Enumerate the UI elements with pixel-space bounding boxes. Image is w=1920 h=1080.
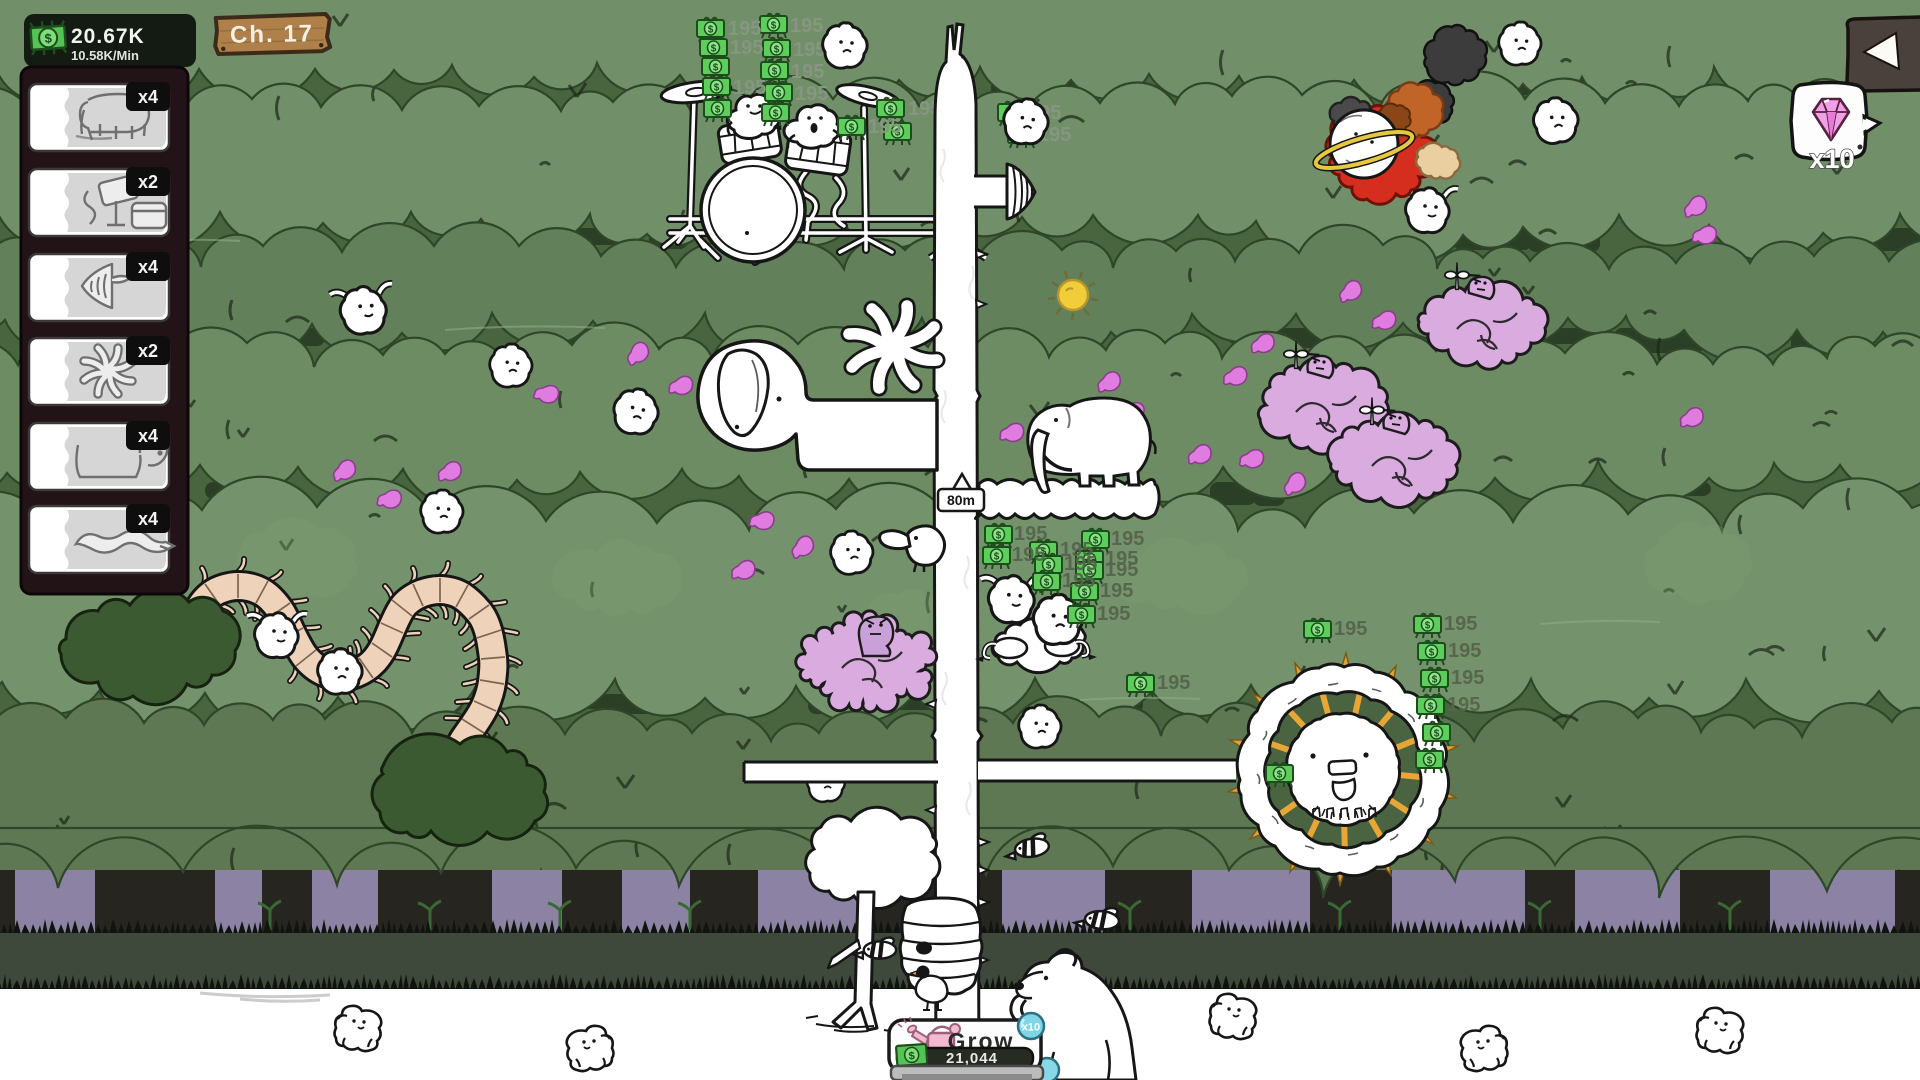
svg-text:195: 195 [1105,559,1138,581]
svg-text:195: 195 [1100,580,1133,602]
svg-text:x4: x4 [138,257,158,277]
svg-text:195: 195 [1448,640,1481,662]
svg-text:195: 195 [1062,570,1095,592]
svg-text:195: 195 [1334,618,1367,640]
svg-text:195: 195 [791,61,824,83]
svg-text:195: 195 [1451,667,1484,689]
svg-text:x10: x10 [1809,144,1854,174]
svg-text:195: 195 [795,83,828,105]
svg-text:195: 195 [1014,523,1047,545]
svg-text:x4: x4 [138,509,158,529]
svg-text:x2: x2 [138,341,158,361]
svg-text:21,044: 21,044 [946,1050,998,1067]
svg-text:195: 195 [868,116,901,138]
svg-text:Ch. 17: Ch. 17 [230,20,314,48]
svg-text:20.67K: 20.67K [71,25,145,48]
svg-text:195: 195 [733,77,766,99]
svg-text:x4: x4 [138,87,158,107]
svg-text:80m: 80m [947,492,975,508]
svg-text:10.58K/Min: 10.58K/Min [71,48,139,63]
svg-text:$: $ [908,1050,915,1062]
svg-text:x4: x4 [138,426,158,446]
svg-text:195: 195 [1012,544,1045,566]
svg-text:195: 195 [1157,672,1190,694]
svg-text:195: 195 [730,37,763,59]
svg-text:195: 195 [790,15,823,37]
svg-text:195: 195 [1111,528,1144,550]
svg-text:x2: x2 [138,172,158,192]
svg-text:x10: x10 [1022,1022,1040,1034]
svg-text:195: 195 [1444,613,1477,635]
svg-text:195: 195 [1097,603,1130,625]
svg-text:195: 195 [1447,694,1480,716]
